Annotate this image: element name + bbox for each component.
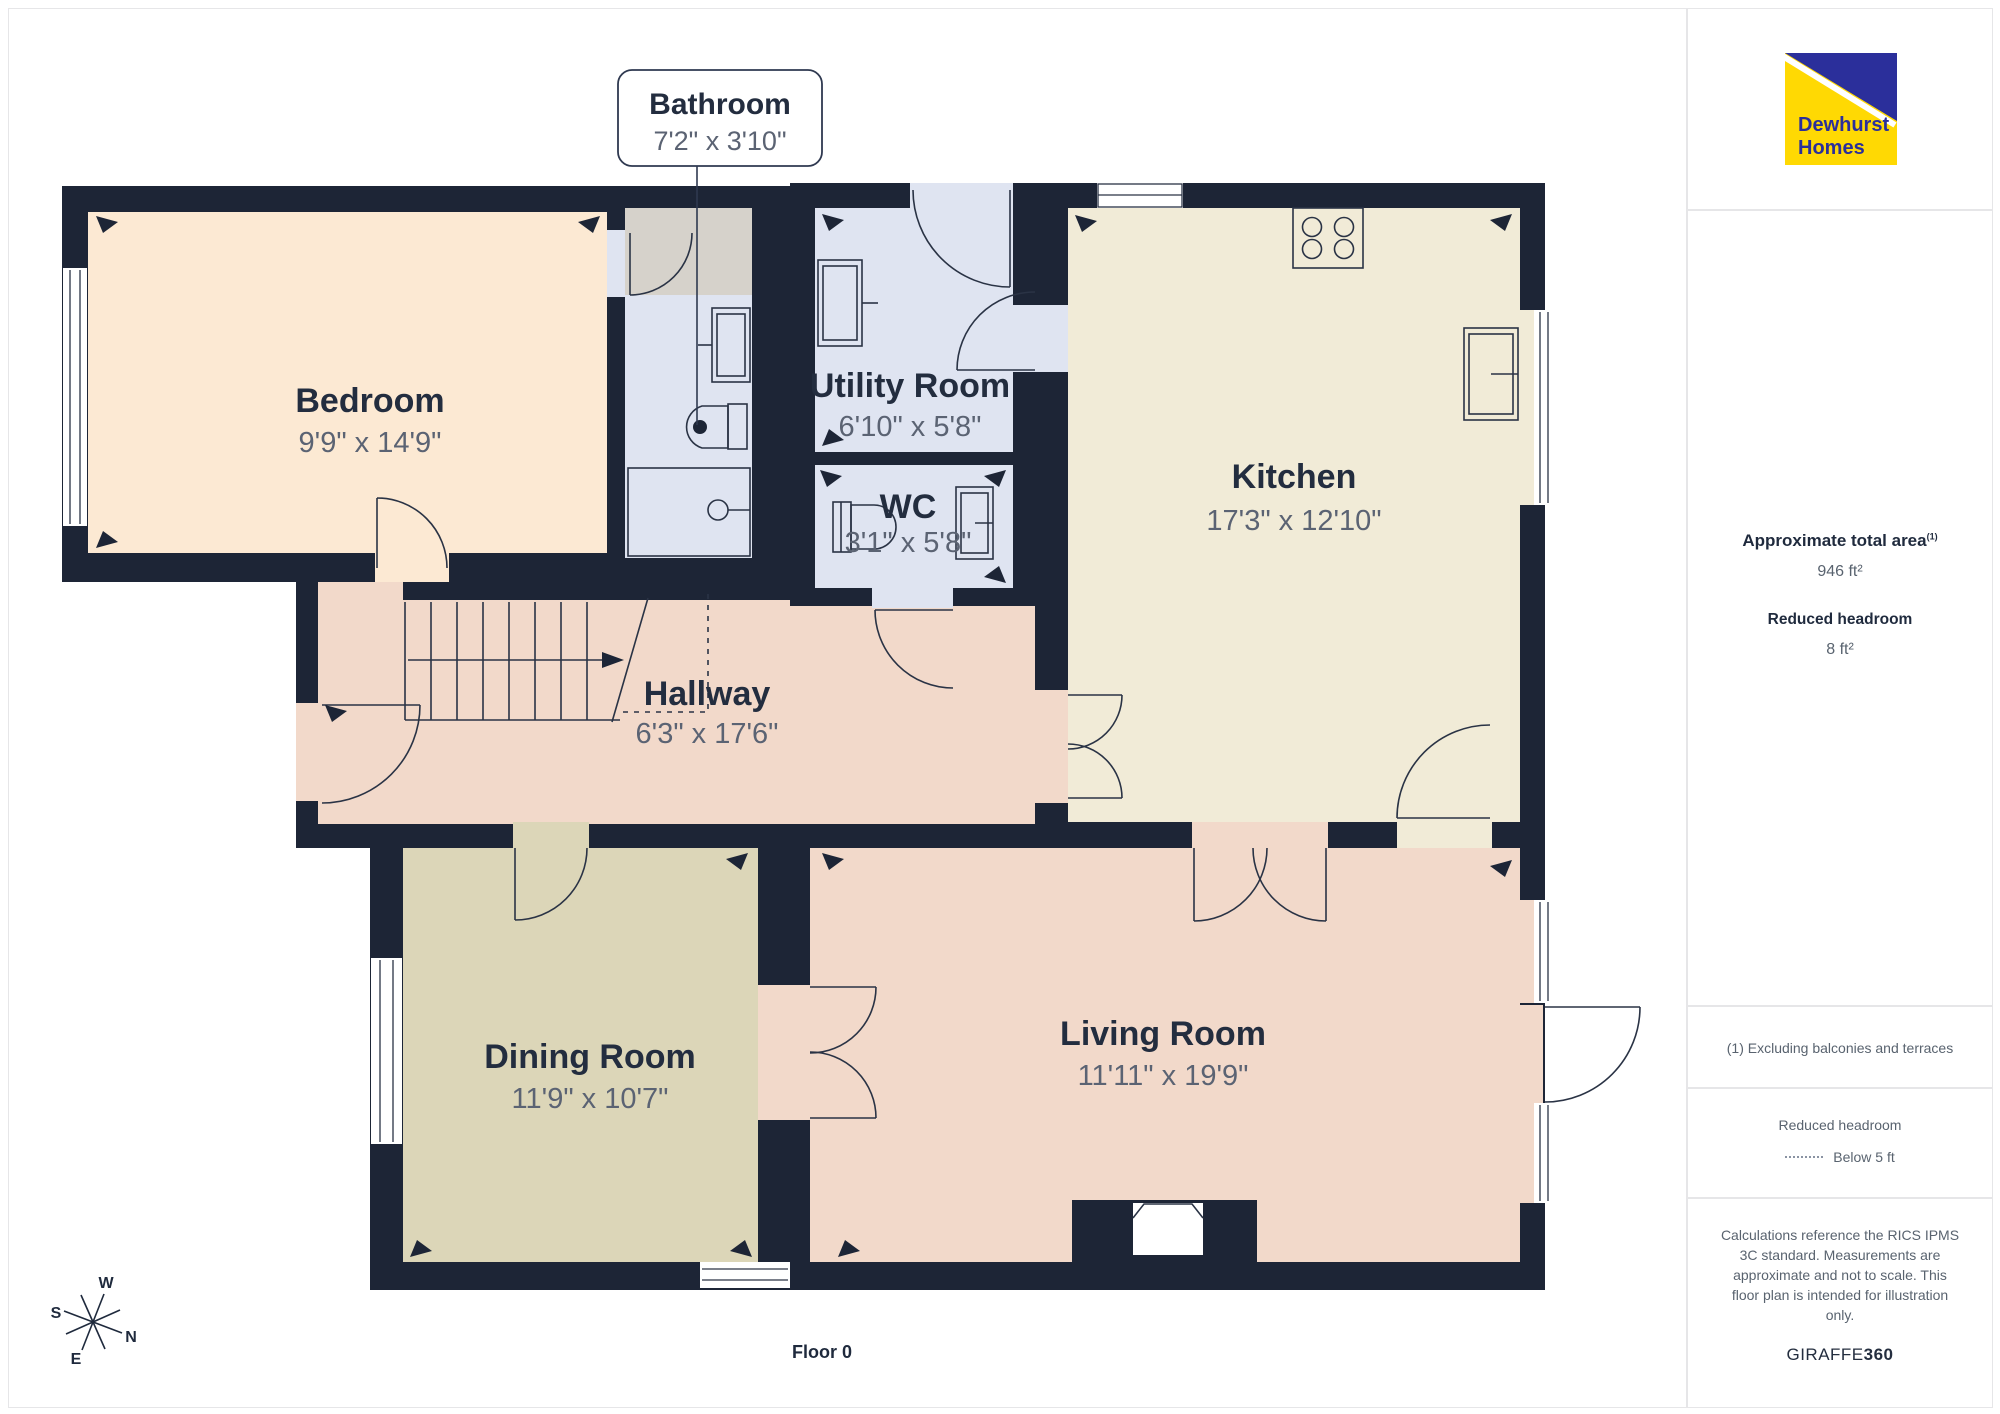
- sidebar-disclaimer-box: Calculations reference the RICS IPMS 3C …: [1687, 1198, 1993, 1408]
- logo-text-line2: Homes: [1798, 137, 1865, 159]
- bedroom-label: Bedroom: [295, 382, 444, 420]
- total-area-value: 946 ft²: [1688, 563, 1992, 581]
- sidebar-note-box: (1) Excluding balconies and terraces: [1687, 1006, 1993, 1088]
- wc-dims: 3'1" x 5'8": [845, 527, 972, 559]
- floorplan-page: Bedroom 9'9" x 14'9" Utility Room 6'10" …: [0, 0, 2000, 1414]
- utility-dims: 6'10" x 5'8": [839, 411, 982, 443]
- wc-label: WC: [880, 488, 937, 526]
- logo-text-line1: Dewhurst: [1798, 114, 1889, 136]
- hallway-label: Hallway: [644, 675, 771, 713]
- giraffe360-brand: GIRAFFE360: [1688, 1345, 1992, 1365]
- total-area-heading: Approximate total area(1): [1688, 531, 1992, 551]
- kitchen-right-window: [1534, 310, 1554, 505]
- reduced-headroom-heading: Reduced headroom: [1688, 611, 1992, 629]
- living-label: Living Room: [1060, 1015, 1266, 1053]
- bedroom-dims: 9'9" x 14'9": [299, 427, 442, 459]
- kitchen-label: Kitchen: [1232, 458, 1357, 496]
- floor-label: Floor 0: [792, 1342, 852, 1362]
- sidebar-legend-box: Reduced headroom Below 5 ft: [1687, 1088, 1993, 1198]
- compass-s: S: [51, 1305, 62, 1322]
- bathroom-dims: 7'2" x 3'10": [653, 126, 786, 156]
- room-bathroom-floor: [625, 295, 752, 558]
- living-patio-door: [1545, 1007, 1640, 1102]
- living-right-window-upper: [1534, 900, 1554, 1003]
- kitchen-top-window: [1097, 183, 1183, 208]
- bathroom-label: Bathroom: [649, 88, 791, 121]
- compass-n: N: [125, 1329, 137, 1346]
- bedroom-window: [63, 268, 87, 526]
- living-dims: 11'11" x 19'9": [1078, 1060, 1249, 1092]
- sidebar-area-box: Approximate total area(1) 946 ft² Reduce…: [1687, 210, 1993, 1006]
- living-right-window-lower: [1534, 1103, 1554, 1203]
- sidebar-logo-box: Dewhurst Homes: [1687, 8, 1993, 210]
- agency-logo: Dewhurst Homes: [1785, 53, 1897, 165]
- dining-label: Dining Room: [484, 1038, 696, 1076]
- footnote-text: (1) Excluding balconies and terraces: [1688, 1040, 1992, 1056]
- legend-item-label: Below 5 ft: [1833, 1149, 1894, 1165]
- reduced-headroom-value: 8 ft²: [1688, 641, 1992, 659]
- dining-window: [371, 958, 402, 1144]
- utility-label: Utility Room: [810, 367, 1010, 405]
- room-bathroom-shower-area: [625, 208, 752, 295]
- compass-e: E: [71, 1351, 82, 1368]
- fireplace: [1072, 1200, 1257, 1262]
- kitchen-dims: 17'3" x 12'10": [1206, 505, 1381, 537]
- compass: W S N E: [51, 1275, 137, 1368]
- compass-w: W: [98, 1275, 114, 1292]
- room-living-floor: [810, 848, 1520, 1262]
- legend-title: Reduced headroom: [1688, 1117, 1992, 1133]
- footnote-marker: (1): [1927, 531, 1938, 541]
- hallway-dims: 6'3" x 17'6": [636, 718, 779, 750]
- disclaimer-text: Calculations reference the RICS IPMS 3C …: [1688, 1225, 1992, 1325]
- bottom-window: [700, 1262, 790, 1288]
- dining-dims: 11'9" x 10'7": [512, 1083, 669, 1115]
- reduced-headroom-dotted-line: [1785, 1156, 1823, 1158]
